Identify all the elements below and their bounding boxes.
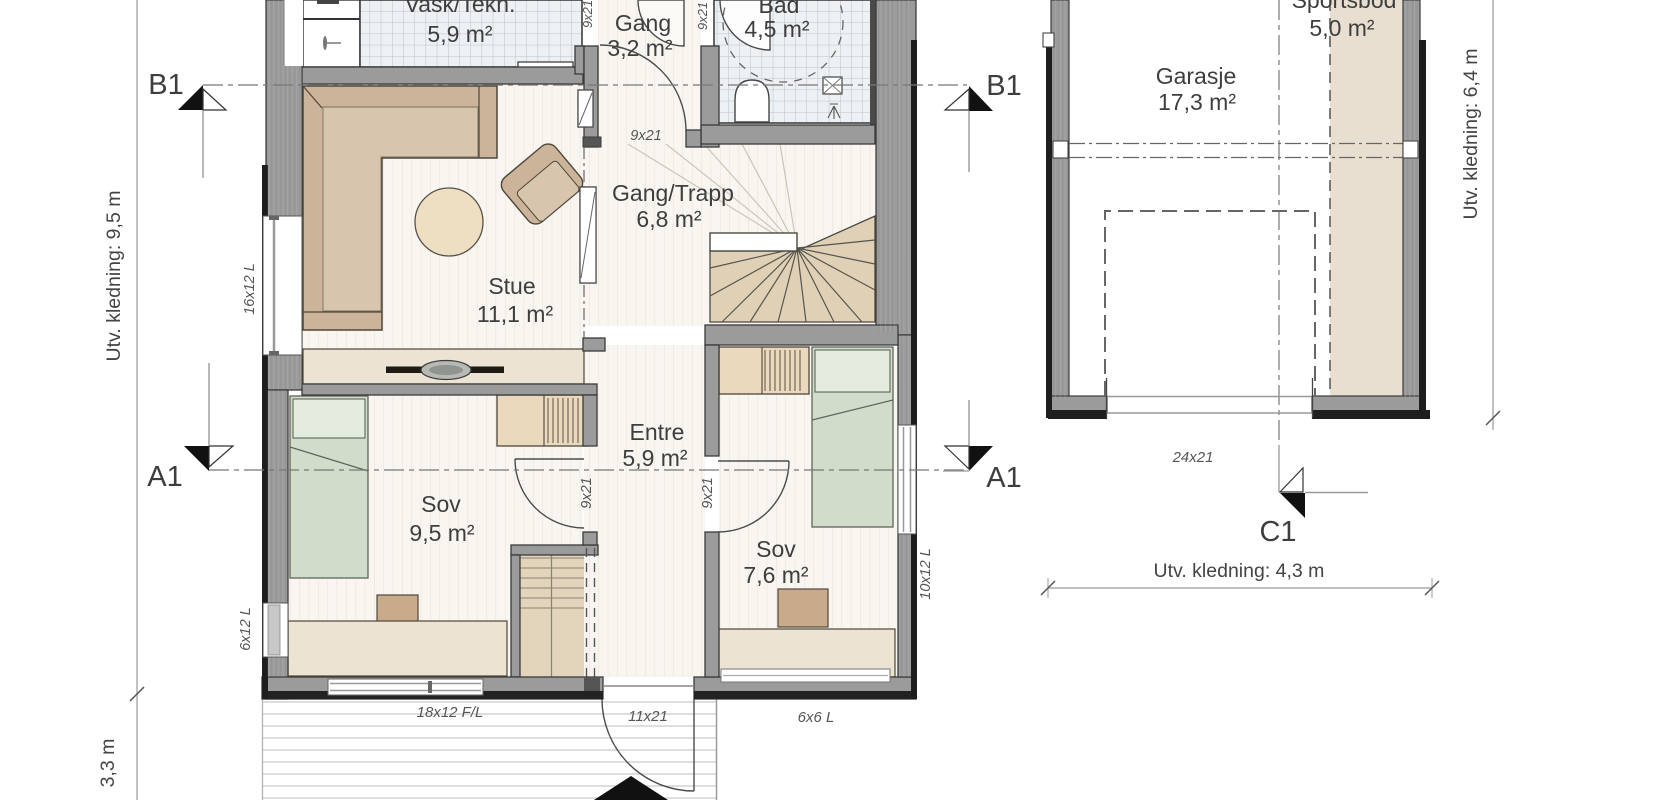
svg-text:C1: C1 (1259, 516, 1296, 548)
svg-text:9x21: 9x21 (695, 2, 710, 30)
svg-text:6,8 m²: 6,8 m² (636, 206, 702, 232)
svg-text:Garasje: Garasje (1156, 63, 1237, 89)
svg-text:5,9 m²: 5,9 m² (622, 445, 688, 471)
svg-text:Gang: Gang (615, 10, 671, 36)
svg-text:5,9 m²: 5,9 m² (427, 21, 493, 47)
svg-text:11x21: 11x21 (628, 708, 668, 725)
svg-text:A1: A1 (147, 461, 182, 493)
svg-text:4,5 m²: 4,5 m² (744, 16, 810, 42)
svg-text:9,5 m²: 9,5 m² (409, 520, 475, 546)
svg-text:Sov: Sov (756, 536, 796, 562)
svg-text:A1: A1 (986, 462, 1021, 494)
svg-text:10x12 L: 10x12 L (918, 548, 934, 600)
svg-text:Vask/Tekn.: Vask/Tekn. (405, 0, 516, 17)
svg-text:11,1 m²: 11,1 m² (477, 301, 554, 327)
svg-text:Sportsbod: Sportsbod (1292, 0, 1397, 13)
svg-text:16x12 L: 16x12 L (242, 263, 258, 315)
svg-text:Entre: Entre (630, 419, 685, 445)
svg-text:B1: B1 (148, 69, 183, 101)
svg-text:3,3 m: 3,3 m (97, 739, 119, 788)
svg-text:7,6 m²: 7,6 m² (743, 562, 809, 588)
svg-text:3,2 m²: 3,2 m² (607, 35, 673, 61)
svg-text:Utv. kledning: 4,3 m: Utv. kledning: 4,3 m (1154, 560, 1325, 582)
svg-text:9x21: 9x21 (700, 477, 716, 508)
svg-text:17,3 m²: 17,3 m² (1158, 89, 1236, 115)
svg-text:9x21: 9x21 (630, 128, 661, 144)
svg-text:24x21: 24x21 (1172, 449, 1214, 466)
svg-text:18x12 F/L: 18x12 F/L (417, 704, 484, 721)
svg-text:5,0 m²: 5,0 m² (1309, 15, 1375, 41)
svg-text:Utv. kledning: 9,5 m: Utv. kledning: 9,5 m (103, 191, 125, 362)
svg-text:9x21: 9x21 (580, 0, 595, 28)
svg-text:B1: B1 (986, 70, 1021, 102)
svg-text:Stue: Stue (488, 273, 535, 299)
svg-text:9x21: 9x21 (579, 477, 595, 508)
svg-text:6x12 L: 6x12 L (238, 607, 254, 651)
svg-text:Utv. kledning: 6,4 m: Utv. kledning: 6,4 m (1460, 49, 1482, 220)
svg-text:Gang/Trapp: Gang/Trapp (612, 180, 734, 206)
svg-text:6x6 L: 6x6 L (798, 709, 835, 726)
svg-text:Sov: Sov (421, 491, 461, 517)
